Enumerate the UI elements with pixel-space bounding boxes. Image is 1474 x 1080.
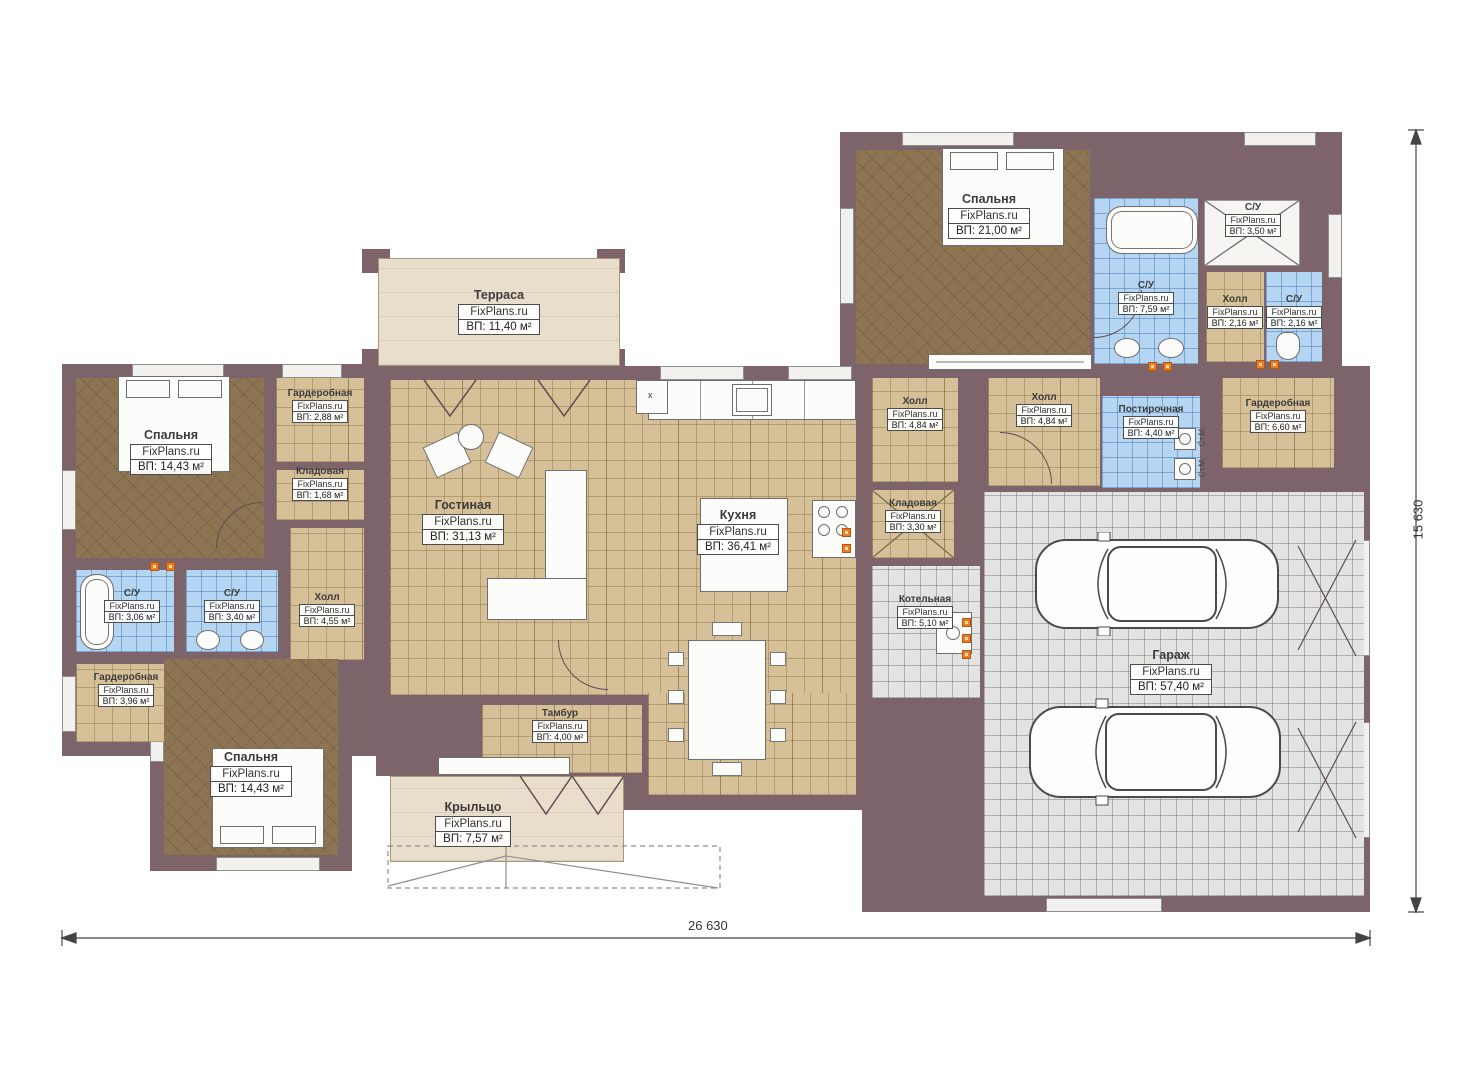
pillow-icon [272,826,316,844]
radiator-icon [962,634,971,643]
sink-icon [1158,338,1184,358]
window [902,132,1014,146]
washer-label: Ст.М. [1197,458,1206,478]
room-label-wardrobe-right: Гардеробная FixPlans.ruВП: 6,60 м² [1224,398,1332,433]
car-icon [1032,532,1282,636]
burner-icon [818,524,830,536]
chair-icon [712,622,742,636]
bathtub-icon [1106,206,1198,254]
window [840,208,854,304]
pillow-icon [220,826,264,844]
room-label-hall-left: Холл FixPlans.ruВП: 4,55 м² [290,592,364,627]
pillow-icon [126,380,170,398]
appliance-x-mark: х [648,390,653,400]
room-label-hall-mid-2: Холл FixPlans.ruВП: 4,84 м² [996,392,1092,427]
window [788,366,852,380]
dining-table-icon [688,640,766,760]
room-label-storage-mid: Кладовая FixPlans.ruВП: 3,30 м² [872,498,954,533]
window [1244,132,1316,146]
radiator-icon [1148,362,1157,371]
sink-icon [732,384,772,416]
window [282,364,342,378]
room-label-bedroom-left-top: Спальня FixPlans.ruВП: 14,43 м² [110,428,232,475]
room-label-wardrobe-left-bottom: Гардеробная FixPlans.ruВП: 3,96 м² [80,672,172,707]
radiator-icon [962,650,971,659]
chair-icon [770,690,786,704]
dimension-width-label: 26 630 [688,918,728,933]
chair-icon [668,690,684,704]
room-label-pantry-left: Кладовая FixPlans.ruВП: 1,68 м² [278,466,362,501]
radiator-icon [842,528,851,537]
room-label-living: Гостиная FixPlans.ruВП: 31,13 м² [400,498,526,545]
window [216,857,320,871]
window [62,470,76,530]
burner-icon [818,506,830,518]
sink-icon [1114,338,1140,358]
room-label-terrace: Терраса FixPlans.ruВП: 11,40 м² [436,288,562,335]
room-label-hall-top-right: Холл FixPlans.ruВП: 2,16 м² [1204,294,1266,329]
chair-icon [770,652,786,666]
burner-icon [836,506,848,518]
radiator-icon [1163,362,1172,371]
floor-plan: х Ст.М. Ст.М. [0,0,1474,1080]
washer-label: Ст.М. [1197,427,1206,447]
room-label-garage: Гараж FixPlans.ruВП: 57,40 м² [1108,648,1234,695]
chair-icon [712,762,742,776]
room-label-bath-left-1: С/У FixPlans.ruВП: 3,06 м² [92,588,172,623]
bench-icon [928,354,1092,370]
radiator-icon [1256,360,1265,369]
window [1046,898,1162,912]
window [62,676,76,732]
toilet-icon [1276,332,1300,360]
dimension-height-label: 15 630 [1410,500,1425,540]
sofa-icon [487,578,587,620]
pillow-icon [950,152,998,170]
chair-icon [668,652,684,666]
room-label-shower-top-right: С/У FixPlans.ruВП: 3,50 м² [1212,202,1294,237]
room-label-kitchen: Кухня FixPlans.ruВП: 36,41 м² [680,508,796,555]
window [660,366,744,380]
radiator-icon [1270,360,1279,369]
room-label-tambour: Тамбур FixPlans.ruВП: 4,00 м² [500,708,620,743]
chair-icon [770,728,786,742]
coffee-table-icon [458,424,484,450]
room-label-boiler: Котельная FixPlans.ruВП: 5,10 м² [870,594,980,629]
sink-icon [240,630,264,650]
porch-steps [438,757,570,775]
room-label-bath-master: С/У FixPlans.ruВП: 7,59 м² [1098,280,1194,315]
sink-icon [196,630,220,650]
room-label-wardrobe-left-top: Гардеробная FixPlans.ruВП: 2,88 м² [278,388,362,423]
room-label-bedroom-right: Спальня FixPlans.ruВП: 21,00 м² [926,192,1052,239]
radiator-icon [166,562,175,571]
room-label-porch: Крыльцо FixPlans.ruВП: 7,57 м² [410,800,536,847]
room-label-bath-left-2: С/У FixPlans.ruВП: 3,40 м² [190,588,274,623]
pillow-icon [178,380,222,398]
radiator-icon [842,544,851,553]
chair-icon [668,728,684,742]
room-label-hall-mid-1: Холл FixPlans.ruВП: 4,84 м² [872,396,958,431]
car-icon [1026,698,1284,806]
washing-machine-drum-icon [1179,463,1191,475]
room-label-bedroom-left-bottom: Спальня FixPlans.ruВП: 14,43 м² [190,750,312,797]
room-label-laundry: Постирочная FixPlans.ruВП: 4,40 м² [1104,404,1198,439]
radiator-icon [150,562,159,571]
room-label-bath-top-right: С/У FixPlans.ruВП: 2,16 м² [1264,294,1324,329]
window [1328,214,1342,278]
pillow-icon [1006,152,1054,170]
